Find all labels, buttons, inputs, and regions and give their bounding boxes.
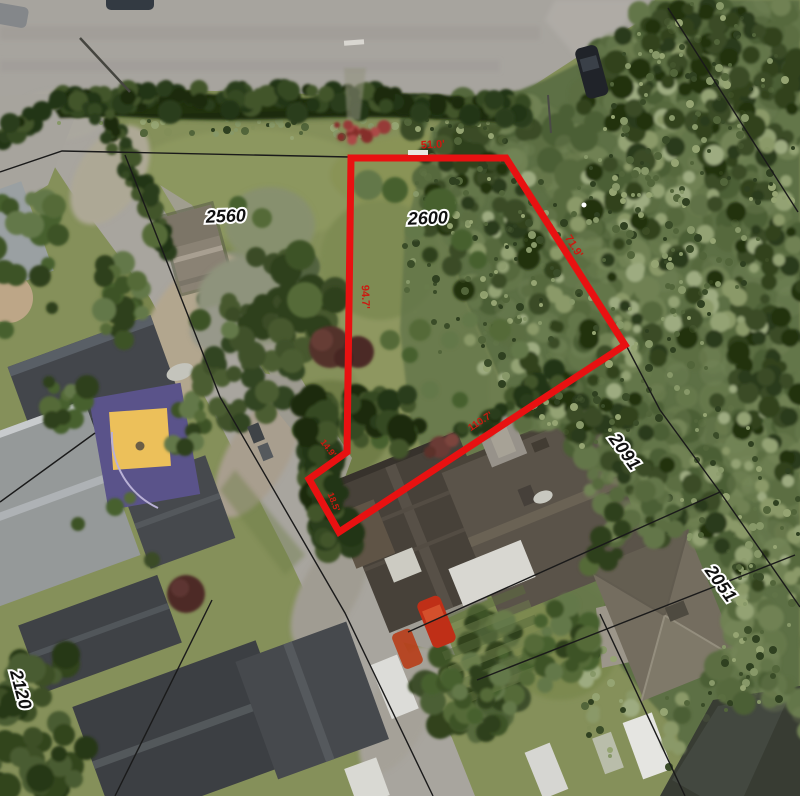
svg-text:51.0': 51.0' bbox=[421, 138, 446, 151]
svg-text:2560: 2560 bbox=[204, 205, 246, 226]
svg-text:2600: 2600 bbox=[406, 207, 448, 228]
svg-text:94.7': 94.7' bbox=[359, 285, 372, 310]
